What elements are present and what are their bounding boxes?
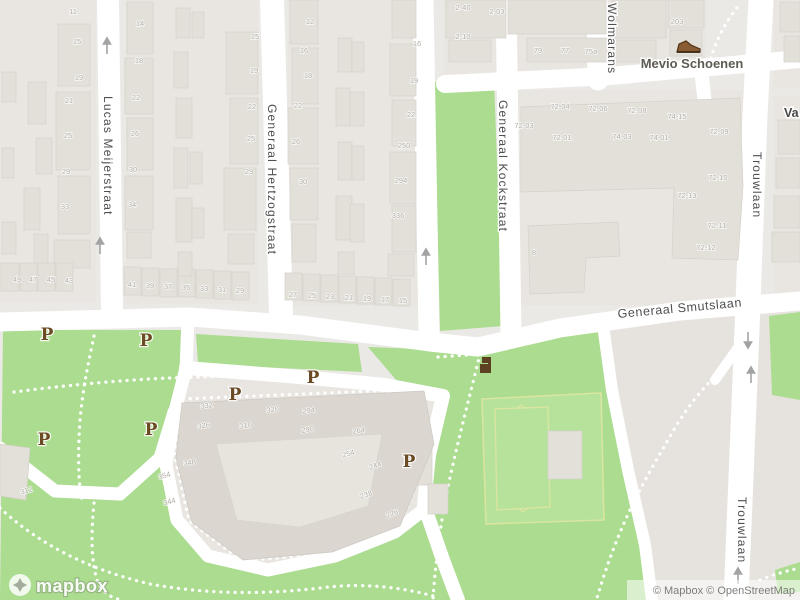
street-label-trouwlaan-north: Trouwlaan bbox=[750, 152, 764, 218]
street-label-partial-va: Va bbox=[784, 106, 800, 120]
parking-marker[interactable]: P bbox=[38, 430, 51, 450]
street-label-generaal-hertzogstraat: Generaal Hertzogstraat bbox=[265, 104, 279, 255]
house-number: 19 bbox=[250, 66, 258, 75]
house-number: 2-40 bbox=[455, 3, 470, 12]
house-number: 22 bbox=[248, 102, 256, 111]
poi-mevio-label[interactable]: Mevio Schoenen bbox=[641, 56, 744, 71]
house-number: 290 bbox=[301, 424, 315, 435]
house-number: 34 bbox=[128, 200, 136, 209]
house-number: 2-10 bbox=[455, 32, 470, 41]
house-number: 19 bbox=[363, 294, 371, 303]
house-number: 19 bbox=[410, 76, 418, 85]
house-number: 264 bbox=[352, 425, 366, 436]
house-number: 74-03 bbox=[612, 132, 631, 141]
park-strip-kockstraat bbox=[434, 79, 503, 331]
house-number: 16 bbox=[413, 39, 421, 48]
house-number: 17 bbox=[381, 295, 389, 304]
house-number: 47 bbox=[29, 275, 37, 284]
house-number: 72-09 bbox=[709, 127, 728, 136]
house-number: 33 bbox=[200, 284, 208, 293]
house-number: 74-01 bbox=[649, 133, 668, 142]
house-number: 2-03 bbox=[489, 7, 504, 16]
house-number: 72-13 bbox=[677, 191, 696, 200]
house-number: 25 bbox=[308, 291, 316, 300]
house-number: 21 bbox=[65, 96, 73, 105]
parking-marker[interactable]: P bbox=[307, 368, 320, 388]
house-number: 45 bbox=[47, 275, 55, 284]
parking-marker[interactable]: P bbox=[403, 452, 416, 472]
house-number: 310 bbox=[239, 420, 253, 431]
house-number: 37 bbox=[164, 282, 172, 291]
house-number: 72-12 bbox=[696, 243, 715, 252]
parking-marker[interactable]: P bbox=[229, 385, 242, 405]
house-number: 22 bbox=[294, 101, 302, 110]
house-number: 26 bbox=[131, 129, 139, 138]
parking-marker[interactable]: P bbox=[140, 331, 153, 351]
street-label-generaal-kockstraat: Generaal Kockstraat bbox=[496, 100, 510, 232]
green-junction-corner bbox=[769, 312, 800, 400]
mapbox-logo-text: mapbox bbox=[36, 576, 108, 596]
house-number: 72-10 bbox=[708, 173, 727, 182]
house-number: 18 bbox=[304, 71, 312, 80]
house-number: 30 bbox=[129, 165, 137, 174]
house-number: 29 bbox=[62, 167, 70, 176]
house-number: 43 bbox=[65, 276, 73, 285]
house-number: 294 bbox=[302, 405, 316, 416]
attribution-bar: © Mapbox © OpenStreetMap bbox=[627, 580, 800, 600]
house-number: 39 bbox=[146, 281, 154, 290]
house-number: 15 bbox=[73, 37, 81, 46]
house-number: 25 bbox=[64, 131, 72, 140]
house-number: 27 bbox=[289, 290, 297, 299]
house-number: 326 bbox=[197, 420, 211, 431]
house-number: 15 bbox=[251, 32, 259, 41]
house-number: 31 bbox=[218, 285, 226, 294]
sports-pitch bbox=[482, 393, 604, 524]
house-number: 23 bbox=[326, 292, 334, 301]
house-number: 72-03 bbox=[514, 121, 533, 130]
house-number: 21 bbox=[345, 293, 353, 302]
house-number: 79 bbox=[534, 46, 542, 55]
mapbox-logo[interactable]: mapbox bbox=[9, 574, 108, 596]
house-number: 332 bbox=[200, 400, 214, 411]
house-number: 35 bbox=[182, 283, 190, 292]
house-number: 25 bbox=[247, 134, 255, 143]
house-number: 14 bbox=[136, 19, 144, 28]
house-number: 22 bbox=[407, 110, 415, 119]
house-number: 72-11 bbox=[708, 221, 727, 230]
house-number: 72-01 bbox=[552, 133, 571, 142]
attribution-text[interactable]: © Mapbox © OpenStreetMap bbox=[653, 585, 795, 597]
map-svg[interactable]: 1115192125293314182226303449474543413937… bbox=[0, 0, 800, 600]
house-number: 18 bbox=[135, 56, 143, 65]
house-number: 19 bbox=[75, 73, 83, 82]
road-unnamed-north bbox=[423, 0, 429, 332]
house-number: 72-08 bbox=[627, 106, 646, 115]
house-number: 29 bbox=[236, 286, 244, 295]
house-number: 72-04 bbox=[550, 102, 569, 111]
map-canvas[interactable]: 1115192125293314182226303449474543413937… bbox=[0, 0, 800, 600]
parking-marker[interactable]: P bbox=[145, 420, 158, 440]
house-number: 16 bbox=[300, 46, 308, 55]
street-label-trouwlaan-south: Trouwlaan bbox=[735, 497, 749, 563]
house-number: 15 bbox=[399, 296, 407, 305]
house-number: 75a bbox=[585, 47, 598, 56]
house-number: 320 bbox=[266, 404, 280, 415]
house-number: 26 bbox=[292, 137, 300, 146]
house-number: 294 bbox=[395, 176, 408, 185]
house-number: 33 bbox=[61, 202, 69, 211]
house-number: 72-06 bbox=[588, 104, 607, 113]
house-number: 336 bbox=[392, 211, 405, 220]
house-number: 11 bbox=[69, 7, 77, 16]
parking-marker[interactable]: P bbox=[41, 325, 54, 345]
house-number: 77 bbox=[561, 46, 569, 55]
house-number: 30 bbox=[299, 177, 307, 186]
street-label-wolmarans: Wolmarans bbox=[605, 3, 619, 74]
house-number: 250 bbox=[398, 141, 411, 150]
house-number: 74-15 bbox=[667, 112, 686, 121]
house-number: 41 bbox=[128, 280, 136, 289]
house-number: 22 bbox=[132, 93, 140, 102]
street-label-lucas-meijerstraat: Lucas Meijerstraat bbox=[101, 96, 115, 216]
house-number: 348 bbox=[183, 457, 197, 468]
house-number: 12 bbox=[306, 17, 314, 26]
house-number: 8 bbox=[532, 248, 536, 257]
house-number: 49 bbox=[13, 275, 21, 284]
house-number: 29 bbox=[245, 167, 253, 176]
house-number: 203 bbox=[671, 17, 684, 26]
